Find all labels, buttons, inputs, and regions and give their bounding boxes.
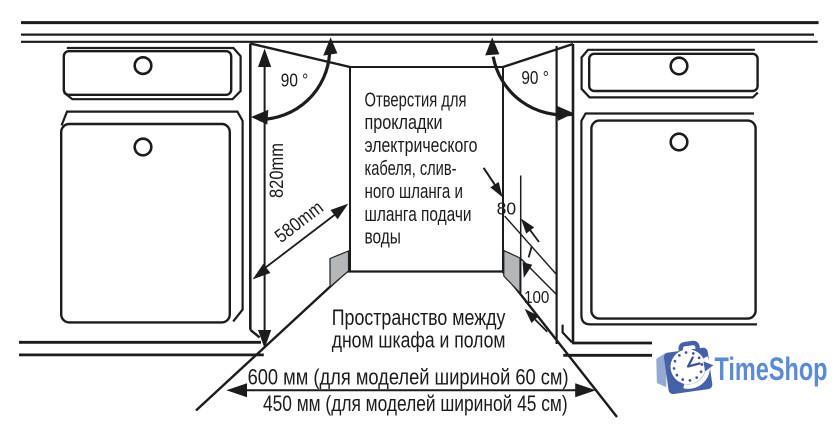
svg-text:100: 100 bbox=[524, 287, 550, 307]
svg-text:90 °: 90 ° bbox=[521, 67, 549, 88]
svg-text:600 мм (для моделей шириной 60: 600 мм (для моделей шириной 60 см) bbox=[248, 365, 569, 390]
svg-text:электрического: электрического bbox=[365, 135, 478, 157]
svg-text:Пространство между: Пространство между bbox=[332, 305, 506, 330]
svg-text:80: 80 bbox=[497, 199, 517, 219]
svg-text:дном шкафа и полом: дном шкафа и полом bbox=[332, 327, 506, 352]
svg-text:шланга подачи: шланга подачи bbox=[365, 204, 472, 226]
svg-text:воды: воды bbox=[365, 227, 401, 249]
svg-text:кабеля, слив-: кабеля, слив- bbox=[365, 158, 457, 180]
svg-text:TimeShop: TimeShop bbox=[715, 351, 828, 387]
svg-text:ного шланга и: ного шланга и bbox=[365, 181, 463, 203]
svg-text:90 °: 90 ° bbox=[281, 69, 309, 90]
svg-text:прокладки: прокладки bbox=[365, 112, 443, 134]
svg-text:Отверстия для: Отверстия для bbox=[365, 89, 467, 111]
svg-text:450 мм (для моделей шириной 45: 450 мм (для моделей шириной 45 см) bbox=[263, 391, 568, 416]
svg-text:820mm: 820mm bbox=[267, 143, 288, 198]
